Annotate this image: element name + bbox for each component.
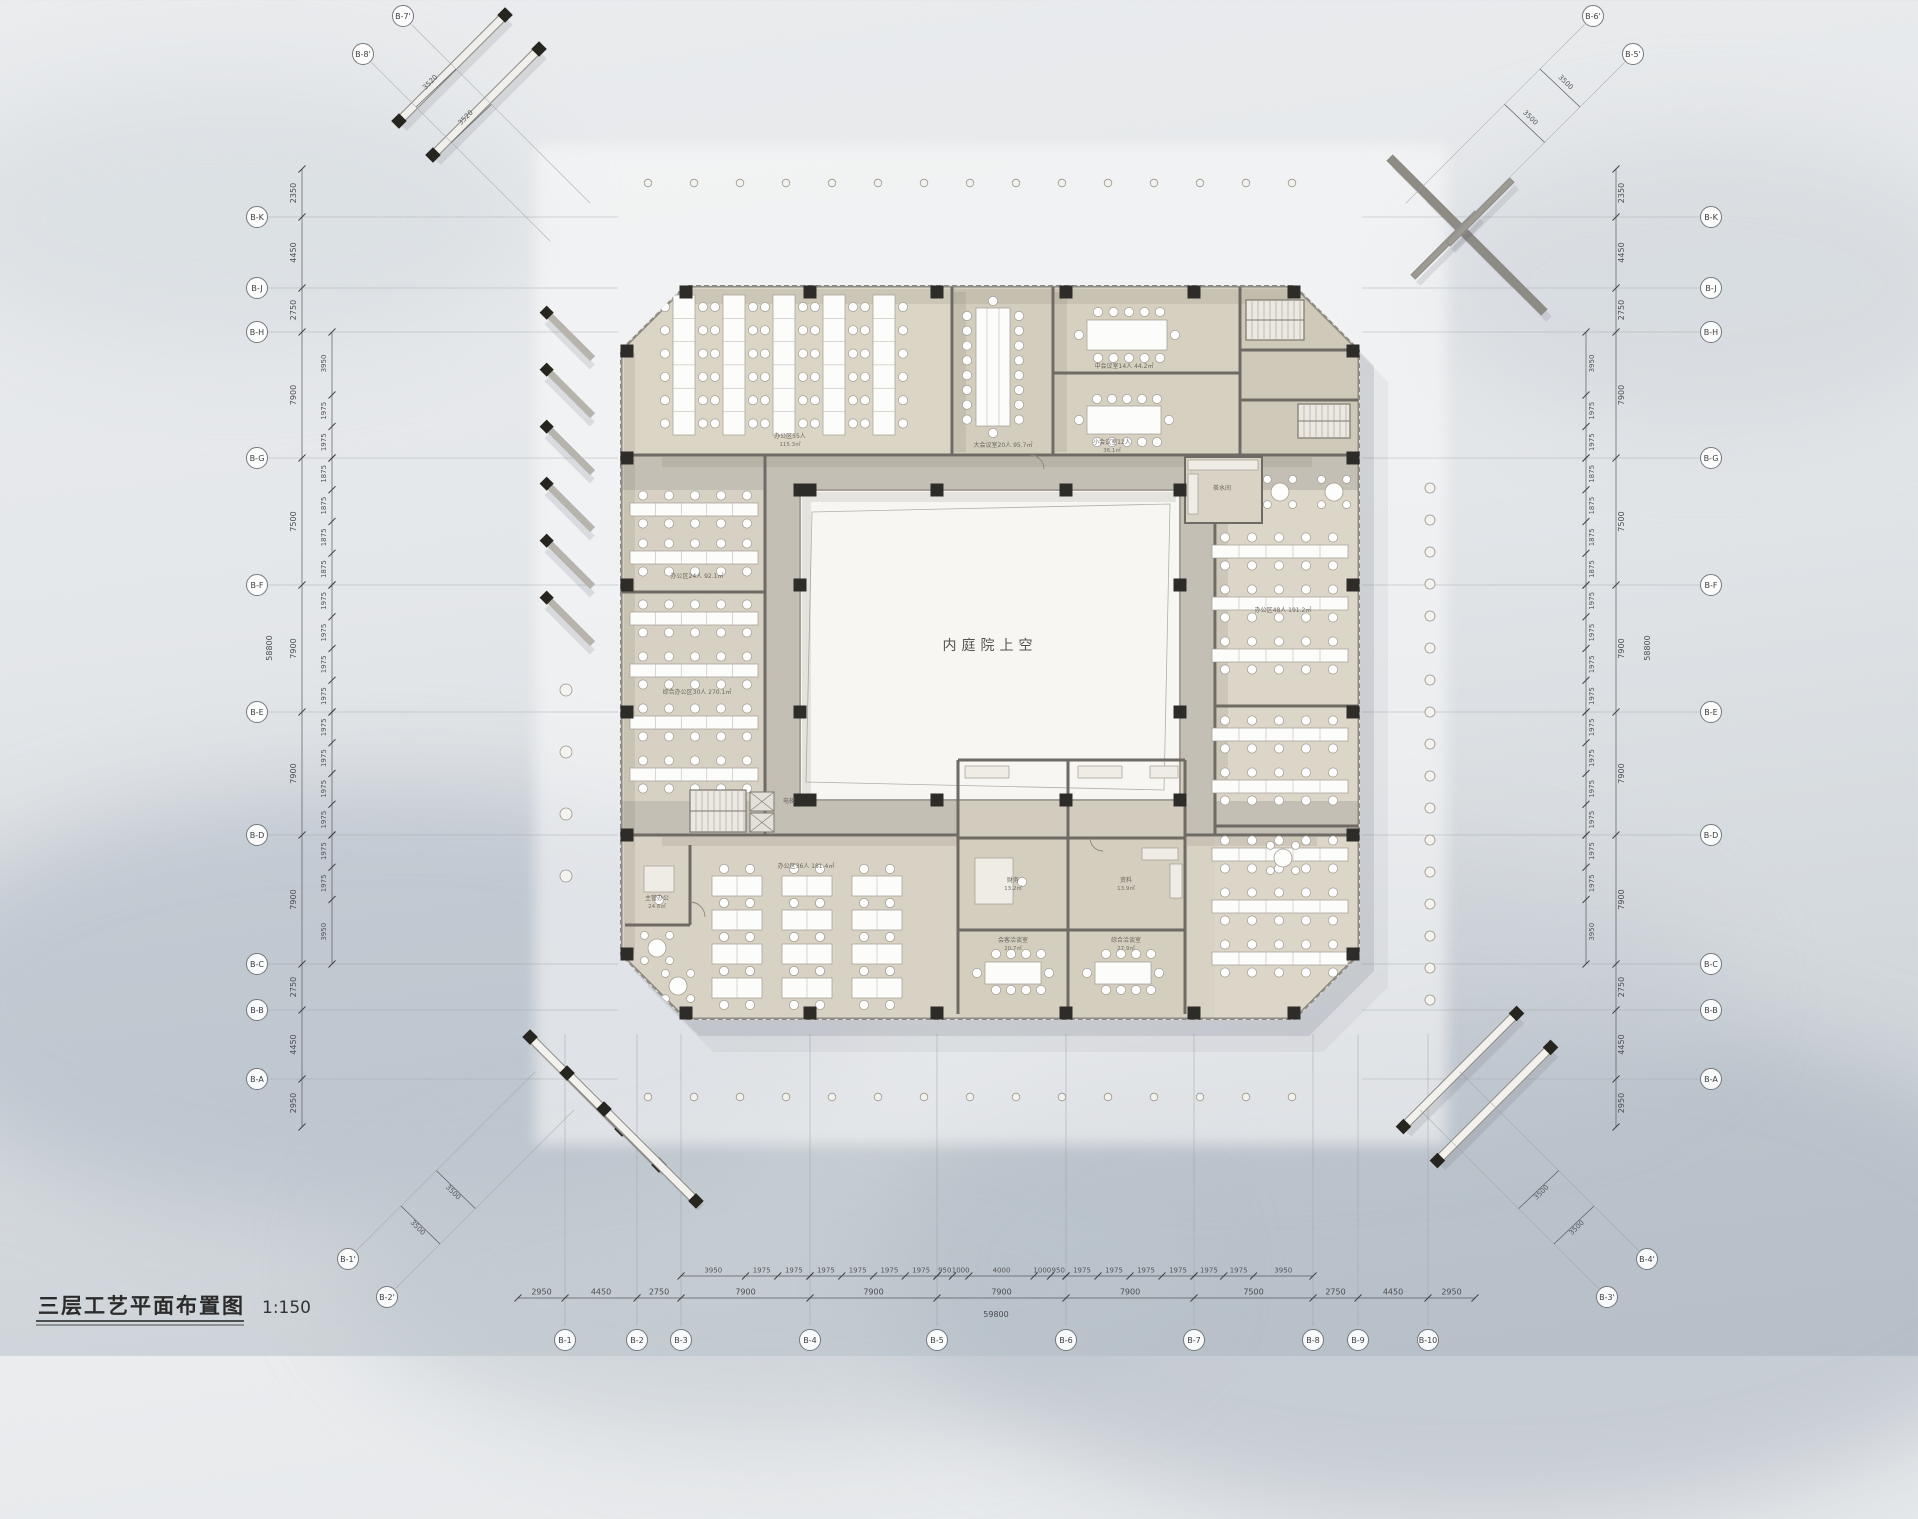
dimension-text: B-C [1704,960,1718,969]
dimension-text: B-9 [1351,1336,1364,1345]
dimension-text: 1975 [1588,749,1596,767]
dimension-text: 4450 [1617,1034,1626,1054]
dimension-text: B-K [250,213,264,222]
dimension-text: 1975 [320,749,328,767]
dimension-text: 58800 [1643,635,1652,660]
dimension-text: 1975 [880,1267,898,1275]
axis-bubble-B-10: B-10 [1418,1330,1439,1351]
dimension-text: 1000 [1033,1267,1051,1275]
room-area-archive: 13.9㎡ [1117,884,1135,892]
dimension-text: B-A [250,1075,264,1084]
room-label-office-w1: 办公区24人 92.1㎡ [671,572,724,580]
dimension-text: 59800 [983,1310,1008,1319]
room-label-conf-large: 大会议室20人 95.7㎡ [974,441,1033,449]
room-label-meeting-s2: 综合洽谈室 [1111,936,1141,944]
room-label-office-sw: 主管办公 [645,894,669,902]
axis-bubble-B-D: B-D [1701,825,1722,846]
axis-bubble-B-1: B-1 [555,1330,576,1351]
dimension-text: 2750 [289,977,298,997]
dimension-text: 3950 [1588,355,1596,373]
dimension-text: B-F [1705,581,1718,590]
room-label-elevator: 电梯 [783,797,795,805]
axis-bubble-B-8': B-8' [353,44,374,65]
dimension-text: B-3 [674,1336,687,1345]
dimension-text: 7900 [1120,1288,1140,1297]
dimension-text: 7900 [735,1288,755,1297]
axis-bubble-B-K: B-K [247,207,268,228]
courtyard-label: 内庭院上空 [943,637,1038,654]
dimension-text: 1875 [320,560,328,578]
axis-bubble-B-9: B-9 [1348,1330,1369,1351]
dimension-text: 2950 [531,1288,551,1297]
axis-bubble-B-E: B-E [247,702,268,723]
dimension-text: 2350 [289,183,298,203]
dimension-text: 7900 [289,763,298,783]
dimension-text: 3500 [444,1183,462,1201]
axis-bubble-B-5': B-5' [1623,44,1644,65]
dimension-text: 4450 [289,1034,298,1054]
dimension-text: 2750 [1617,300,1626,320]
dimension-text: 1975 [320,655,328,673]
axis-bubble-B-H: B-H [247,322,268,343]
dimension-text: B-2 [630,1336,643,1345]
dimension-text: B-2' [379,1293,395,1302]
axis-bubble-B-J: B-J [1701,278,1722,299]
dimension-text: 7900 [1617,638,1626,658]
dimension-text: 1875 [1588,560,1596,578]
room-area-meeting-s2: 27.9㎡ [1117,944,1135,952]
dimension-text: B-4 [803,1336,816,1345]
title-block: 三层工艺平面布置图 1:150 [36,1294,311,1325]
axis-bubble-B-A: B-A [1701,1069,1722,1090]
dimension-text: B-J [251,284,262,293]
axis-bubble-B-3: B-3 [671,1330,692,1351]
room-area-office-nw: 115.3㎡ [779,440,801,448]
room-label-archive: 资料 [1120,876,1132,884]
dimension-text: 4450 [289,242,298,262]
dimension-text: 1975 [1230,1267,1248,1275]
dimension-text: 950 [1052,1267,1065,1275]
dimension-text: 2950 [289,1093,298,1113]
dimension-text: 58800 [265,635,274,660]
dimension-text: 3500 [1556,73,1574,91]
dimension-text: 1975 [1105,1267,1123,1275]
dimension-text: B-7 [1187,1336,1200,1345]
axis-bubble-B-C: B-C [247,954,268,975]
room-label-conf-mid: 中会议室14人 44.2㎡ [1095,362,1154,370]
dimension-text: 1975 [1588,592,1596,610]
dimension-text: 1975 [1588,718,1596,736]
axis-bubble-B-F: B-F [247,575,268,596]
dimension-text: 1875 [1588,465,1596,483]
dimension-text: 1975 [849,1267,867,1275]
dimension-text: 1975 [320,433,328,451]
dimension-text: 3500 [409,1219,427,1237]
dimension-text: 2750 [649,1288,669,1297]
dimension-text: 3950 [320,923,328,941]
dimension-text: 4450 [591,1288,611,1297]
room-label-office-s: 办公区36人 181.4㎡ [778,862,835,870]
dimension-text: 2750 [1325,1288,1345,1297]
axis-bubble-B-E: B-E [1701,702,1722,723]
axis-bubble-B-K: B-K [1701,207,1722,228]
dimension-text: 1875 [320,528,328,546]
dimension-text: B-10 [1419,1336,1438,1345]
dimension-text: 7900 [863,1288,883,1297]
dimension-text: B-D [1704,831,1719,840]
dimension-text: 4000 [993,1267,1011,1275]
dimension-text: 1975 [753,1267,771,1275]
dimension-text: B-6 [1059,1336,1072,1345]
axis-bubble-B-3': B-3' [1597,1287,1618,1308]
dimension-text: 1975 [1073,1267,1091,1275]
axis-bubble-B-2: B-2 [627,1330,648,1351]
axis-bubble-B-J: B-J [247,278,268,299]
dimension-text: 2350 [1617,183,1626,203]
dimension-text: B-G [1704,454,1719,463]
dimension-text: 7500 [289,511,298,531]
axis-bubble-B-7': B-7' [393,6,414,27]
dimension-text: B-G [250,454,265,463]
room-label-pantry: 茶水间 [1213,484,1231,492]
dimension-text: 1975 [320,687,328,705]
dimension-text: 1975 [1588,655,1596,673]
dimension-text: 1975 [1200,1267,1218,1275]
dimension-text: 1875 [1588,528,1596,546]
dimension-text: 7500 [1617,511,1626,531]
axis-bubble-B-7: B-7 [1184,1330,1205,1351]
axis-bubble-B-8: B-8 [1303,1330,1324,1351]
dimension-text: 1975 [1588,687,1596,705]
dimension-text: 1975 [1169,1267,1187,1275]
dimension-text: 1975 [1137,1267,1155,1275]
axis-bubble-B-A: B-A [247,1069,268,1090]
dimension-text: B-A [1704,1075,1718,1084]
floor-plan-canvas: 2350445027507900750079007900790027504450… [0,0,1918,1356]
axis-bubble-B-4: B-4 [800,1330,821,1351]
dimension-text: 7900 [1617,763,1626,783]
room-label-office-e: 办公区48人 191.2㎡ [1255,606,1312,614]
axis-bubble-B-B: B-B [247,1000,268,1021]
dimension-text: B-B [1704,1006,1718,1015]
dimension-text: 1975 [320,811,328,829]
dimension-text: 3500 [1568,1219,1586,1237]
dimension-text: 1975 [320,874,328,892]
dimension-text: B-D [250,831,265,840]
axis-bubble-B-6: B-6 [1056,1330,1077,1351]
dimension-text: B-F [251,581,264,590]
dimension-text: 1875 [320,465,328,483]
axis-bubble-B-G: B-G [247,448,268,469]
dimension-text: 7900 [991,1288,1011,1297]
dimension-text: 1975 [1588,624,1596,642]
dimension-text: 7900 [289,889,298,909]
dimension-text: 1975 [320,842,328,860]
dimension-text: 1975 [1588,811,1596,829]
dimension-text: 3950 [1588,923,1596,941]
dimension-text: B-1 [558,1336,571,1345]
room-area-office-sw: 24.6㎡ [648,902,666,910]
dimension-text: 2950 [1617,1093,1626,1113]
dimension-text: B-5' [1625,50,1641,59]
dimension-text: 3500 [1532,1183,1550,1201]
dimension-text: B-E [1704,708,1717,717]
dimension-text: B-3' [1599,1293,1615,1302]
dimension-text: B-8' [355,50,371,59]
room-label-office-nw: 办公区55人 [774,432,806,440]
dimension-text: 7900 [1617,889,1626,909]
room-area-conf-small: 36.1㎡ [1103,446,1121,454]
dimension-text: 2750 [1617,977,1626,997]
dimension-text: B-H [1704,328,1718,337]
dimension-text: 1975 [1588,780,1596,798]
room-label-finance: 财务 [1007,876,1019,884]
dimension-text: B-4' [1639,1255,1655,1264]
dimension-text: 3950 [320,355,328,373]
dimension-text: 1975 [320,780,328,798]
dimension-text: 2950 [1441,1288,1461,1297]
dimension-text: 1875 [1588,497,1596,515]
axis-bubble-B-H: B-H [1701,322,1722,343]
dimension-text: 3950 [704,1267,722,1275]
dimension-text: 1975 [320,592,328,610]
drawing-title: 三层工艺平面布置图 [38,1294,245,1318]
axis-bubble-B-F: B-F [1701,575,1722,596]
axis-bubble-B-5: B-5 [927,1330,948,1351]
dimension-text: 1975 [1588,402,1596,420]
dimension-text: 7900 [1617,385,1626,405]
dimension-text: B-5 [930,1336,943,1345]
room-area-finance: 13.2㎡ [1004,884,1022,892]
dimension-text: 2750 [289,300,298,320]
dimension-text: 1975 [817,1267,835,1275]
dimension-text: 1975 [1588,842,1596,860]
axis-bubble-B-C: B-C [1701,954,1722,975]
dimension-text: B-7' [395,12,411,21]
dimension-text: 1875 [320,497,328,515]
dimension-text: 4450 [1383,1288,1403,1297]
dimension-text: B-J [1705,284,1716,293]
dimension-text: 1975 [320,402,328,420]
dimension-text: B-1' [340,1255,356,1264]
dimension-text: B-K [1704,213,1718,222]
dimension-text: B-H [250,328,264,337]
axis-bubble-B-B: B-B [1701,1000,1722,1021]
dimension-text: B-8 [1306,1336,1319,1345]
dimension-text: 7900 [289,638,298,658]
dimension-text: B-6' [1585,12,1601,21]
dimension-text: 1975 [1588,433,1596,451]
dimension-text: B-B [250,1006,264,1015]
dimension-text: 1975 [1588,874,1596,892]
dimension-text: 1975 [785,1267,803,1275]
room-label-conf-small: 小会议室12人 [1093,438,1131,446]
dimension-text: 1975 [320,624,328,642]
room-label-office-w2: 综合办公区30人 270.1㎡ [663,688,732,696]
dimension-text: 4450 [1617,242,1626,262]
room-area-meeting-s1: 20.7㎡ [1004,944,1022,952]
dimension-text: B-C [250,960,264,969]
dimension-text: 1975 [320,718,328,736]
dimension-text: 1975 [912,1267,930,1275]
dimension-text: 950 [938,1267,951,1275]
axis-bubble-B-2': B-2' [377,1287,398,1308]
dimension-text: 1000 [952,1267,970,1275]
axis-bubble-B-1': B-1' [338,1249,359,1270]
axis-bubble-B-D: B-D [247,825,268,846]
dimension-text: B-E [250,708,263,717]
dimension-text: 7500 [1243,1288,1263,1297]
dimension-text: 3500 [1521,109,1539,127]
dimension-text: 7900 [289,385,298,405]
axis-bubble-B-G: B-G [1701,448,1722,469]
drawing-scale: 1:150 [262,1298,311,1318]
axis-bubble-B-6': B-6' [1583,6,1604,27]
room-label-meeting-s1: 会客洽谈室 [998,936,1028,944]
axis-bubble-B-4': B-4' [1637,1249,1658,1270]
dimension-text: 3950 [1274,1267,1292,1275]
